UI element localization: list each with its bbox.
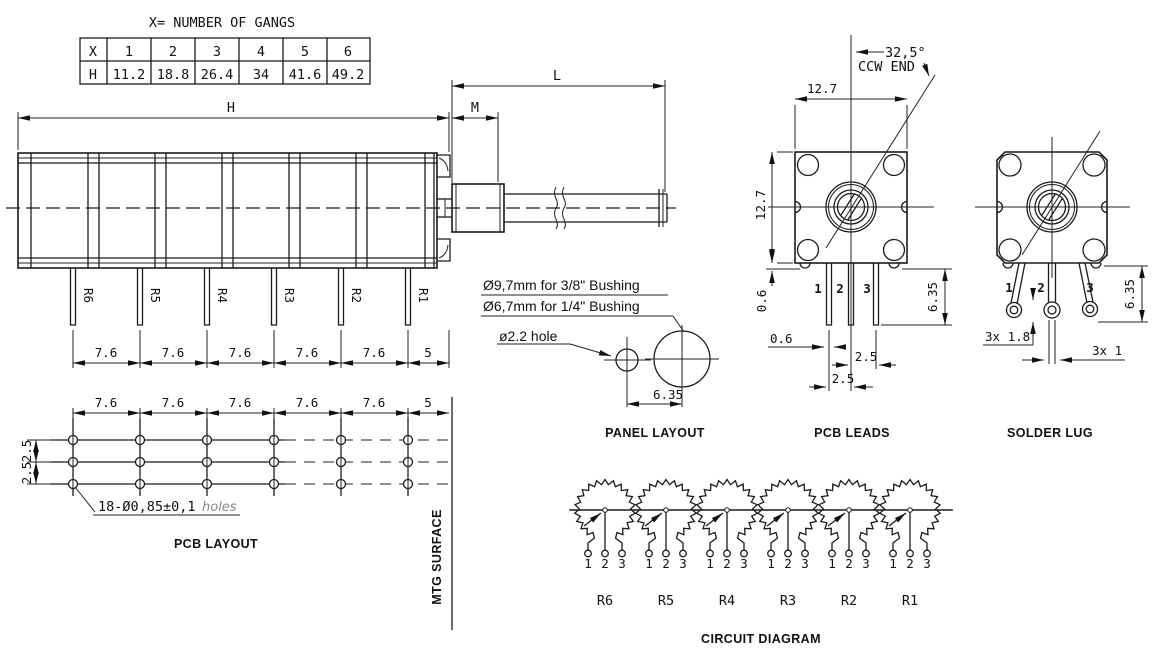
terminal-number: 1 <box>889 556 897 571</box>
table-title: X= NUMBER OF GANGS <box>149 15 295 31</box>
dim-pitch-23: 2.5 <box>855 349 878 364</box>
dim-pitch: 7.6 <box>296 395 319 410</box>
lug-number: 2 <box>1037 280 1045 295</box>
pot-label: R2 <box>841 593 857 609</box>
pin-label-r6: R6 <box>81 288 96 303</box>
dim-h: H <box>227 100 235 116</box>
terminal-number: 3 <box>862 556 870 571</box>
pot-label: R3 <box>780 593 796 609</box>
terminal-number: 1 <box>584 556 592 571</box>
side-view: R6 R5 R4 R3 R2 R1 H M L 7.6 7.6 7.6 7.6 … <box>6 68 676 368</box>
panel-layout-title: PANEL LAYOUT <box>605 426 705 440</box>
dim-pitch: 7.6 <box>363 395 386 410</box>
terminal-number: 3 <box>740 556 748 571</box>
dim-lug-hole: 3x 1.8 <box>985 329 1030 344</box>
pot-label: R6 <box>597 593 613 609</box>
panel-hole-note: ø2.2 hole <box>499 328 558 344</box>
table-cell: 2 <box>169 44 177 60</box>
table-x-label: X <box>89 44 97 60</box>
dim-lug-width: 3x 1 <box>1092 343 1122 358</box>
table-cell: 4 <box>257 44 265 60</box>
table-cell: 34 <box>253 67 269 83</box>
table-cell: 26.4 <box>201 67 234 83</box>
holes-note: 18-Ø0,85±0,1 <box>98 499 196 515</box>
bushing-note-1: Ø9,7mm for 3/8" Bushing <box>483 277 640 293</box>
dim-pitch: 7.6 <box>162 345 185 360</box>
pcb-layout-title: PCB LAYOUT <box>174 537 258 551</box>
terminal-number: 3 <box>801 556 809 571</box>
pot-label: R5 <box>658 593 674 609</box>
terminal-number: 2 <box>601 556 609 571</box>
dim-end-pitch: 5 <box>424 395 432 410</box>
lug-number: 1 <box>1005 280 1013 295</box>
table-cell: 18.8 <box>157 67 190 83</box>
dim-pitch-12: 2.5 <box>832 371 855 386</box>
table-h-label: H <box>89 67 97 83</box>
pot-label: R1 <box>902 593 918 609</box>
pin-label-r3: R3 <box>282 288 297 303</box>
table-cell: 3 <box>213 44 221 60</box>
dim-pitch: 7.6 <box>363 345 386 360</box>
dim-m: M <box>471 100 479 116</box>
terminal-number: 1 <box>706 556 714 571</box>
terminal-number: 3 <box>618 556 626 571</box>
dim-l: L <box>553 68 561 84</box>
pin-label-r5: R5 <box>148 288 163 303</box>
circuit-diagram-title: CIRCUIT DIAGRAM <box>701 632 821 646</box>
table-cell: 6 <box>344 44 352 60</box>
potentiometer-datasheet-drawing: X= NUMBER OF GANGS X 1 2 3 4 5 6 H 11.2 … <box>0 0 1153 663</box>
dim-12-7-left: 12.7 <box>753 190 768 220</box>
dim-row-pitch: 2.5 <box>19 440 34 463</box>
pin-number: 1 <box>814 281 822 296</box>
pcb-leads-title: PCB LEADS <box>814 426 890 440</box>
mtg-surface-label: MTG SURFACE <box>430 509 444 604</box>
terminal-number: 2 <box>906 556 914 571</box>
lug-number: 3 <box>1086 280 1094 295</box>
pcb-leads-view: 1 2 3 32,5° CCW END 12.7 12.7 0.6 0.6 2.… <box>753 35 952 440</box>
dim-pitch: 7.6 <box>95 395 118 410</box>
dim-pin-length: 6.35 <box>925 282 940 312</box>
bushing-note-2: Ø6,7mm for 1/4" Bushing <box>483 298 640 314</box>
terminal-number: 1 <box>828 556 836 571</box>
table-cell: 1 <box>125 44 133 60</box>
dim-end-pitch: 5 <box>424 345 432 360</box>
terminal-number: 2 <box>845 556 853 571</box>
holes-note-suffix: holes <box>202 500 237 515</box>
terminal-number: 2 <box>662 556 670 571</box>
dim-pitch: 7.6 <box>296 345 319 360</box>
terminal-number: 3 <box>679 556 687 571</box>
terminal-number: 1 <box>645 556 653 571</box>
pin-number: 3 <box>863 281 871 296</box>
dim-pitch: 7.6 <box>162 395 185 410</box>
solder-lug-title: SOLDER LUG <box>1007 426 1093 440</box>
panel-layout-view: Ø9,7mm for 3/8" Bushing Ø6,7mm for 1/4" … <box>481 277 719 440</box>
ccw-end-label: CCW END <box>858 59 915 75</box>
table-cell: 49.2 <box>332 67 365 83</box>
pin-label-r2: R2 <box>349 288 364 303</box>
dim-pitch: 7.6 <box>95 345 118 360</box>
dim-pitch: 7.6 <box>229 345 252 360</box>
pin-label-r4: R4 <box>215 288 230 303</box>
table-cell: 11.2 <box>113 67 146 83</box>
solder-lug-view: 1 2 3 3x 1.8 3x 1 6.35 SOLDER LUG <box>975 131 1148 440</box>
dim-12-7-top: 12.7 <box>807 81 837 96</box>
dim-nub: 0.6 <box>754 290 769 313</box>
terminal-number: 3 <box>923 556 931 571</box>
pin-number: 2 <box>836 281 844 296</box>
gangs-table: X= NUMBER OF GANGS X 1 2 3 4 5 6 H 11.2 … <box>80 15 370 84</box>
ccw-indicator-line <box>826 75 935 248</box>
circuit-diagram: 1 2 3 1 2 3 1 2 3 1 2 3 1 2 3 1 2 3 R6 R… <box>570 480 952 647</box>
table-cell: 5 <box>301 44 309 60</box>
dim-center-dist: 6.35 <box>653 387 683 402</box>
pin-label-r1: R1 <box>416 288 431 303</box>
pcb-layout-view: 7.6 7.6 7.6 7.6 7.6 5 2.5 2.5 18-Ø0,85±0 <box>19 395 452 630</box>
dim-pitch: 7.6 <box>229 395 252 410</box>
terminal-number: 2 <box>784 556 792 571</box>
terminal-number: 1 <box>767 556 775 571</box>
dim-lug-length: 6.35 <box>1122 279 1137 309</box>
terminal-number: 2 <box>723 556 731 571</box>
dim-row-pitch: 2.5 <box>19 462 34 485</box>
drawing-canvas: X= NUMBER OF GANGS X 1 2 3 4 5 6 H 11.2 … <box>0 0 1153 663</box>
table-cell: 41.6 <box>289 67 322 83</box>
dim-pin-width: 0.6 <box>770 331 793 346</box>
pot-label: R4 <box>719 593 735 609</box>
